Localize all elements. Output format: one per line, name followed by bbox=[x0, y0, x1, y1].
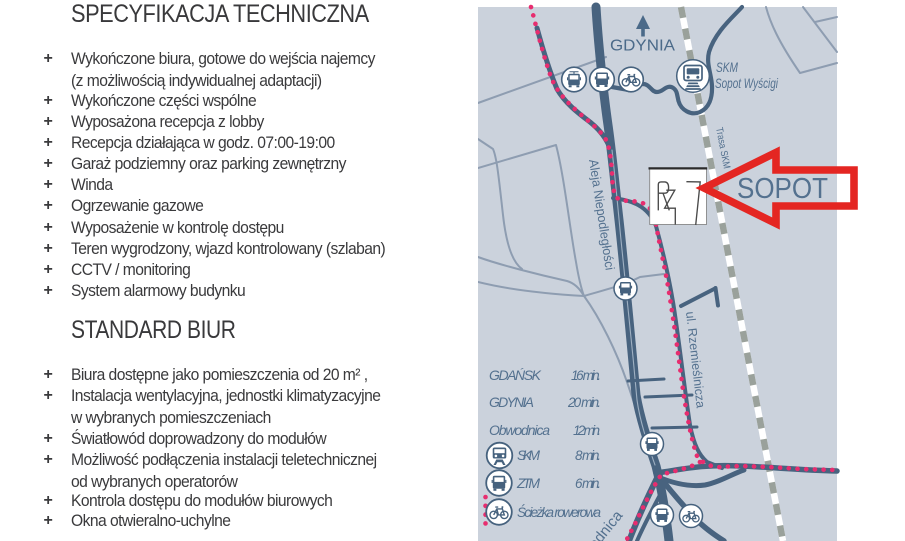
svg-text:GDYNIA: GDYNIA bbox=[610, 38, 676, 55]
svg-text:Obwodnica: Obwodnica bbox=[489, 422, 550, 438]
svg-text:GDYNIA: GDYNIA bbox=[489, 394, 534, 410]
svg-text:GDAŃSK: GDAŃSK bbox=[489, 367, 542, 383]
svg-text:SKM: SKM bbox=[517, 447, 540, 463]
svg-text:6 min.: 6 min. bbox=[575, 476, 601, 491]
svg-text:16 min.: 16 min. bbox=[571, 368, 601, 383]
svg-text:8 min.: 8 min. bbox=[575, 448, 601, 463]
svg-text:12 min.: 12 min. bbox=[573, 423, 601, 438]
svg-text:20 min.: 20 min. bbox=[567, 395, 601, 410]
svg-text:Sopot Wyścigi: Sopot Wyścigi bbox=[715, 76, 779, 91]
svg-text:SOPOT: SOPOT bbox=[737, 173, 828, 205]
svg-text:Ścieżka rowerowa: Ścieżka rowerowa bbox=[517, 505, 601, 520]
svg-text:ZTM: ZTM bbox=[516, 475, 540, 491]
svg-text:SKM: SKM bbox=[716, 60, 739, 75]
